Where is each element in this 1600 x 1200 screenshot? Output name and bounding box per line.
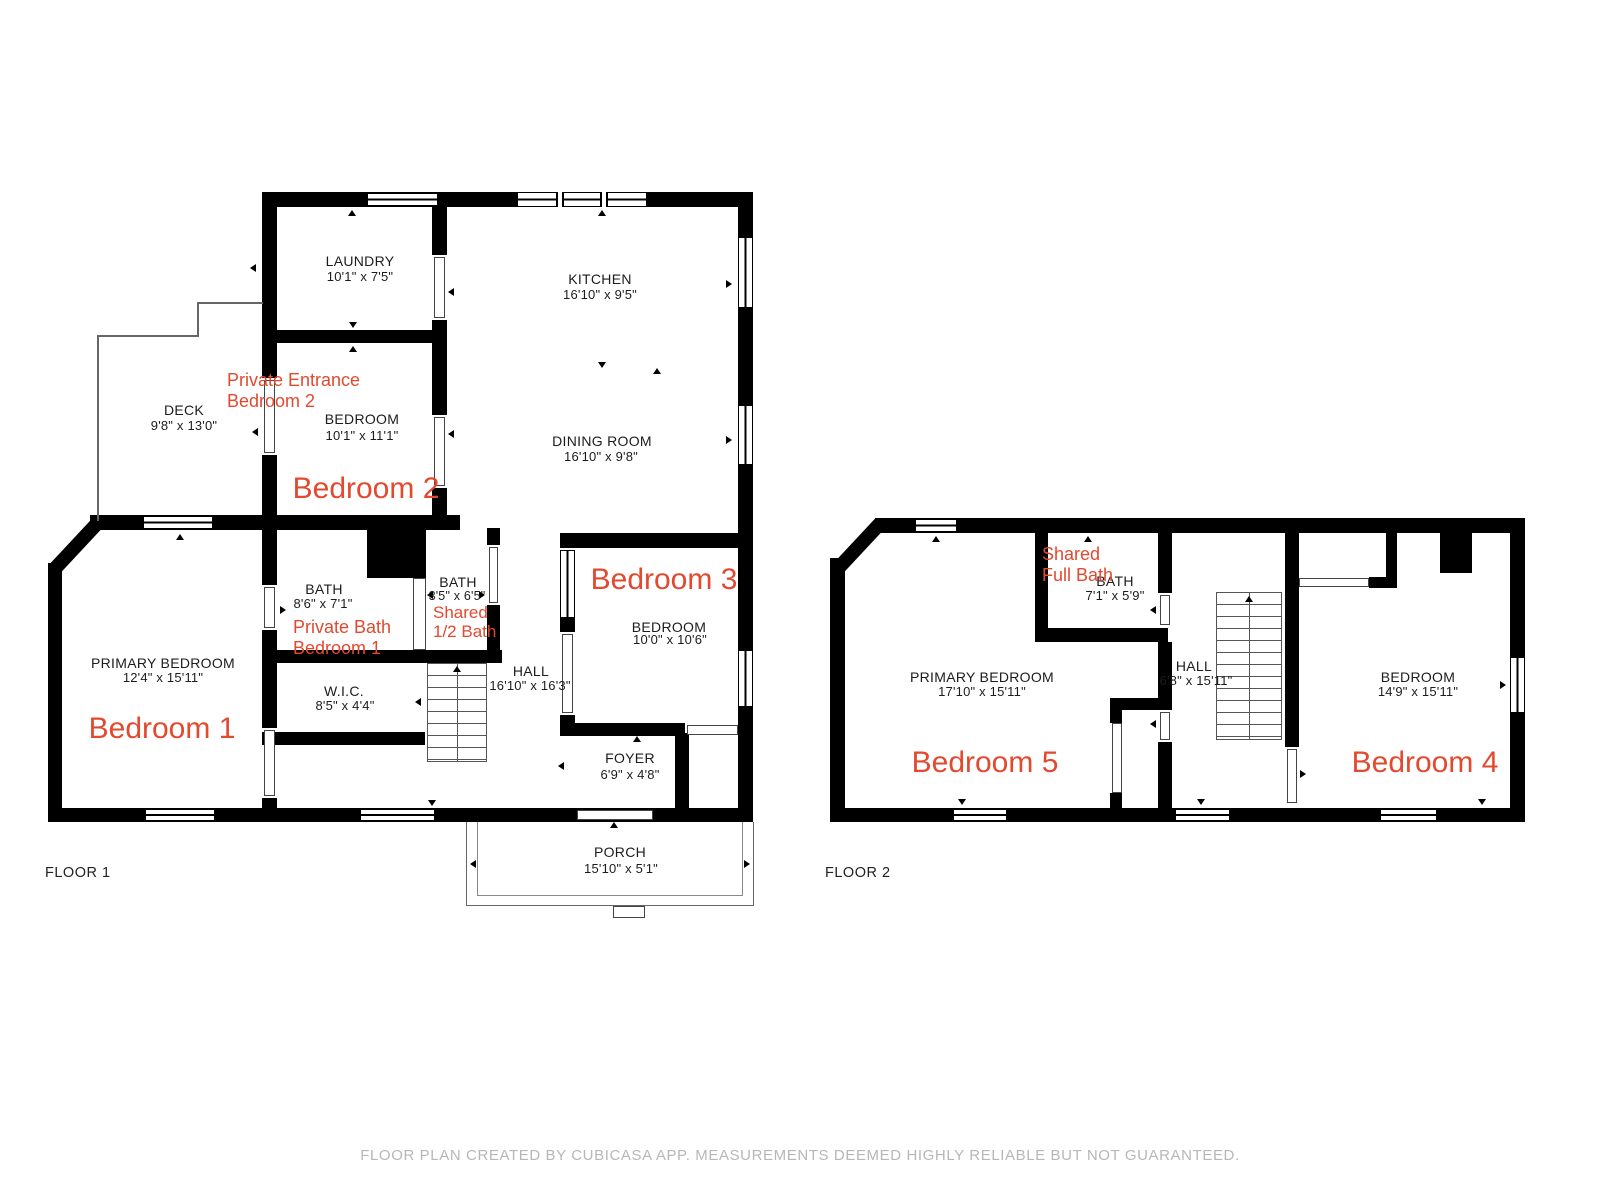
door-arrow-icon — [448, 430, 454, 438]
stairs-up-arrow-icon — [453, 666, 461, 672]
room-dims-bedroom4: 14'9" x 15'11" — [1378, 684, 1458, 699]
room-dims-primary-bedroom: 12'4" x 15'11" — [123, 670, 203, 685]
window — [1175, 809, 1230, 821]
wall — [1510, 533, 1525, 657]
door-opening — [1287, 749, 1297, 803]
door-arrow-icon — [744, 860, 750, 868]
annotation-bedroom3-tag: Bedroom 3 — [591, 563, 738, 597]
annotation-line: Bedroom 1 — [293, 638, 391, 659]
door-arrow-icon — [470, 860, 476, 868]
door-arrow-icon — [1300, 770, 1306, 778]
deck-outline — [197, 302, 199, 336]
door-arrow-icon — [280, 606, 286, 614]
annotation-line: Private Bath — [293, 617, 391, 638]
room-dims-wic: 8'5" x 4'4" — [315, 698, 374, 713]
room-dims-bedroom3: 10'0" x 10'6" — [633, 632, 707, 647]
room-label-bedroom4: BEDROOM — [1381, 669, 1455, 685]
door-arrow-icon — [1478, 799, 1486, 805]
window — [360, 809, 435, 821]
door-arrow-icon — [348, 210, 356, 216]
room-label-hall-f2: HALL — [1176, 658, 1212, 674]
wall-chamfer — [50, 517, 104, 573]
annotation-shared-full-bath: Shared Full Bath — [1042, 544, 1113, 586]
door-opening — [1160, 595, 1170, 625]
wall — [1510, 713, 1525, 822]
disclaimer-text: FLOOR PLAN CREATED BY CUBICASA APP. MEAS… — [360, 1147, 1240, 1164]
wall — [560, 533, 753, 548]
window — [738, 650, 753, 707]
door-arrow-icon — [448, 288, 454, 296]
wall — [875, 518, 1525, 533]
room-dims-bath-half: 3'5" x 6'5" — [429, 589, 486, 603]
door-arrow-icon — [1116, 630, 1124, 636]
window-mullion — [600, 192, 608, 207]
closet-slider-door — [1299, 578, 1369, 587]
window — [367, 193, 438, 206]
wall — [738, 465, 753, 650]
room-label-deck: DECK — [164, 402, 204, 418]
door-opening — [577, 810, 653, 820]
room-dims-dining: 16'10" x 9'8" — [564, 449, 638, 464]
door-arrow-icon — [1150, 720, 1156, 728]
door-opening — [489, 547, 498, 603]
door-arrow-icon — [651, 723, 659, 729]
room-dims-deck: 9'8" x 13'0" — [151, 418, 217, 433]
wall — [738, 207, 753, 237]
door-arrow-icon — [428, 800, 436, 806]
wall — [432, 207, 447, 255]
room-dims-hall: 16'10" x 16'3" — [489, 678, 570, 693]
wall — [560, 723, 685, 736]
door-opening — [1160, 712, 1170, 740]
door-arrow-icon — [958, 799, 966, 805]
room-label-hall: HALL — [513, 663, 549, 679]
room-label-bedroom2: BEDROOM — [325, 411, 399, 427]
porch-step — [613, 906, 645, 918]
wall — [1110, 710, 1122, 723]
staircase — [427, 663, 487, 762]
room-label-porch: PORCH — [594, 844, 646, 860]
window — [738, 237, 753, 308]
wall — [738, 707, 753, 822]
door-arrow-icon — [653, 368, 661, 374]
door-opening — [1112, 723, 1122, 793]
door-arrow-icon — [726, 280, 732, 288]
door-arrow-icon — [1500, 681, 1506, 689]
door-arrow-icon — [633, 736, 641, 742]
window — [145, 809, 215, 821]
door-arrow-icon — [176, 534, 184, 540]
door-arrow-icon — [1150, 606, 1156, 614]
window — [560, 550, 575, 618]
annotation-private-bath: Private Bath Bedroom 1 — [293, 617, 391, 659]
door-arrow-icon — [250, 264, 256, 272]
wall — [1035, 628, 1168, 642]
deck-outline — [97, 335, 99, 521]
deck-outline — [197, 302, 263, 304]
wall — [262, 530, 277, 585]
window — [143, 516, 213, 529]
wall — [1110, 793, 1122, 822]
door-arrow-icon — [598, 210, 606, 216]
door-opening — [264, 730, 275, 796]
room-label-foyer: FOYER — [605, 750, 655, 766]
annotation-bedroom4-tag: Bedroom 4 — [1352, 746, 1499, 780]
room-dims-kitchen: 16'10" x 9'5" — [563, 287, 637, 302]
staircase — [1216, 592, 1282, 740]
window — [517, 192, 647, 207]
wall — [1110, 698, 1172, 710]
wall — [262, 630, 277, 728]
door-opening — [264, 587, 275, 628]
wall — [1158, 533, 1172, 593]
wall — [413, 530, 426, 578]
wall — [830, 558, 845, 808]
room-label-wic: W.I.C. — [324, 683, 364, 699]
door-arrow-icon — [558, 762, 564, 770]
window — [1510, 657, 1525, 713]
wall — [1158, 742, 1172, 822]
annotation-line: Shared — [433, 603, 496, 622]
annotation-bedroom1-tag: Bedroom 1 — [89, 712, 236, 746]
annotation-line: Private Entrance — [227, 370, 360, 391]
room-label-primary-bedroom: PRIMARY BEDROOM — [91, 655, 235, 671]
door-arrow-icon — [932, 536, 940, 542]
room-dims-hall-f2: 6'8" x 15'11" — [1160, 673, 1233, 688]
annotation-line: 1/2 Bath — [433, 622, 496, 641]
room-dims-bedroom2: 10'1" x 11'1" — [326, 428, 399, 443]
room-label-bath-private: BATH — [305, 581, 343, 597]
door-arrow-icon — [598, 362, 606, 368]
wall — [487, 528, 500, 545]
chimney-block — [1440, 533, 1472, 573]
wall — [1386, 533, 1397, 588]
floor2-caption: FLOOR 2 — [825, 865, 891, 881]
room-label-kitchen: KITCHEN — [568, 271, 632, 287]
door-opening — [434, 257, 445, 318]
annotation-line: Shared — [1042, 544, 1113, 565]
wall — [262, 192, 753, 207]
window — [915, 519, 957, 532]
door-arrow-icon — [252, 428, 258, 436]
wall — [1285, 533, 1299, 747]
room-label-laundry: LAUNDRY — [326, 253, 395, 269]
room-dims-foyer: 6'9" x 4'8" — [600, 767, 659, 782]
door-arrow-icon — [726, 436, 732, 444]
wall — [560, 618, 575, 632]
wall — [738, 308, 753, 405]
room-label-primary-bedroom-f2: PRIMARY BEDROOM — [910, 669, 1054, 685]
door-arrow-icon — [610, 822, 618, 828]
annotation-line: Full Bath — [1042, 565, 1113, 586]
room-label-dining: DINING ROOM — [552, 433, 652, 449]
room-dims-bath-f2: 7'1" x 5'9" — [1085, 588, 1144, 603]
floorplan-canvas: LAUNDRY 10'1" x 7'5" KITCHEN 16'10" x 9'… — [0, 0, 1600, 1200]
annotation-shared-half-bath: Shared 1/2 Bath — [433, 603, 496, 641]
annotation-bedroom5-tag: Bedroom 5 — [912, 746, 1059, 780]
wall — [262, 330, 447, 343]
wall — [262, 732, 425, 745]
stairs-up-arrow-icon — [1245, 596, 1253, 602]
door-opening — [562, 634, 573, 713]
annotation-private-entrance: Private Entrance Bedroom 2 — [227, 370, 360, 412]
annotation-bedroom2-tag: Bedroom 2 — [293, 472, 440, 506]
room-dims-primary-bedroom-f2: 17'10" x 15'11" — [938, 684, 1026, 699]
room-label-bath-half: BATH — [439, 574, 477, 590]
door-arrow-icon — [1084, 536, 1092, 542]
door-arrow-icon — [349, 322, 357, 328]
floor1-caption: FLOOR 1 — [45, 865, 111, 881]
room-dims-laundry: 10'1" x 7'5" — [327, 269, 393, 284]
window-mullion — [556, 192, 564, 207]
door-opening — [413, 578, 426, 650]
wall — [262, 207, 277, 378]
window — [738, 405, 753, 465]
wall — [48, 563, 62, 808]
door-arrow-icon — [415, 698, 421, 706]
window — [953, 809, 1007, 821]
door-arrow-icon — [1197, 799, 1205, 805]
room-dims-porch: 15'10" x 5'1" — [584, 861, 658, 876]
door-opening — [687, 725, 738, 735]
annotation-line: Bedroom 2 — [227, 391, 360, 412]
door-arrow-icon — [349, 346, 357, 352]
room-dims-bath-private: 8'6" x 7'1" — [293, 596, 352, 611]
window — [1380, 809, 1437, 821]
deck-outline — [97, 335, 199, 337]
